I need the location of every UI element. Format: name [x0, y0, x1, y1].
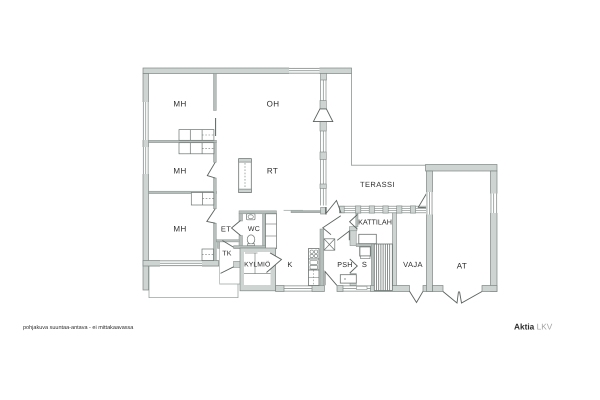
svg-text:WC: WC: [248, 226, 260, 233]
svg-text:K: K: [287, 260, 292, 269]
svg-text:KYLMIÖ: KYLMIÖ: [244, 260, 270, 268]
svg-text:KATTILAH: KATTILAH: [358, 218, 392, 227]
svg-text:pohjakuva suuntaa-antava - ei: pohjakuva suuntaa-antava - ei mittakaava…: [23, 325, 134, 331]
svg-text:MH: MH: [173, 167, 186, 176]
svg-text:OH: OH: [267, 100, 280, 109]
svg-text:MH: MH: [173, 225, 186, 234]
svg-text:PSH: PSH: [337, 260, 352, 269]
svg-text:ET: ET: [221, 225, 231, 234]
svg-text:MH: MH: [173, 100, 186, 109]
svg-text:AT: AT: [457, 262, 467, 271]
svg-text:Aktia LKV: Aktia LKV: [514, 322, 553, 332]
svg-text:S: S: [362, 260, 367, 269]
svg-text:TERASSI: TERASSI: [360, 180, 395, 189]
svg-text:TK: TK: [222, 251, 232, 258]
svg-text:RT: RT: [267, 167, 278, 176]
svg-text:VAJA: VAJA: [403, 260, 423, 269]
